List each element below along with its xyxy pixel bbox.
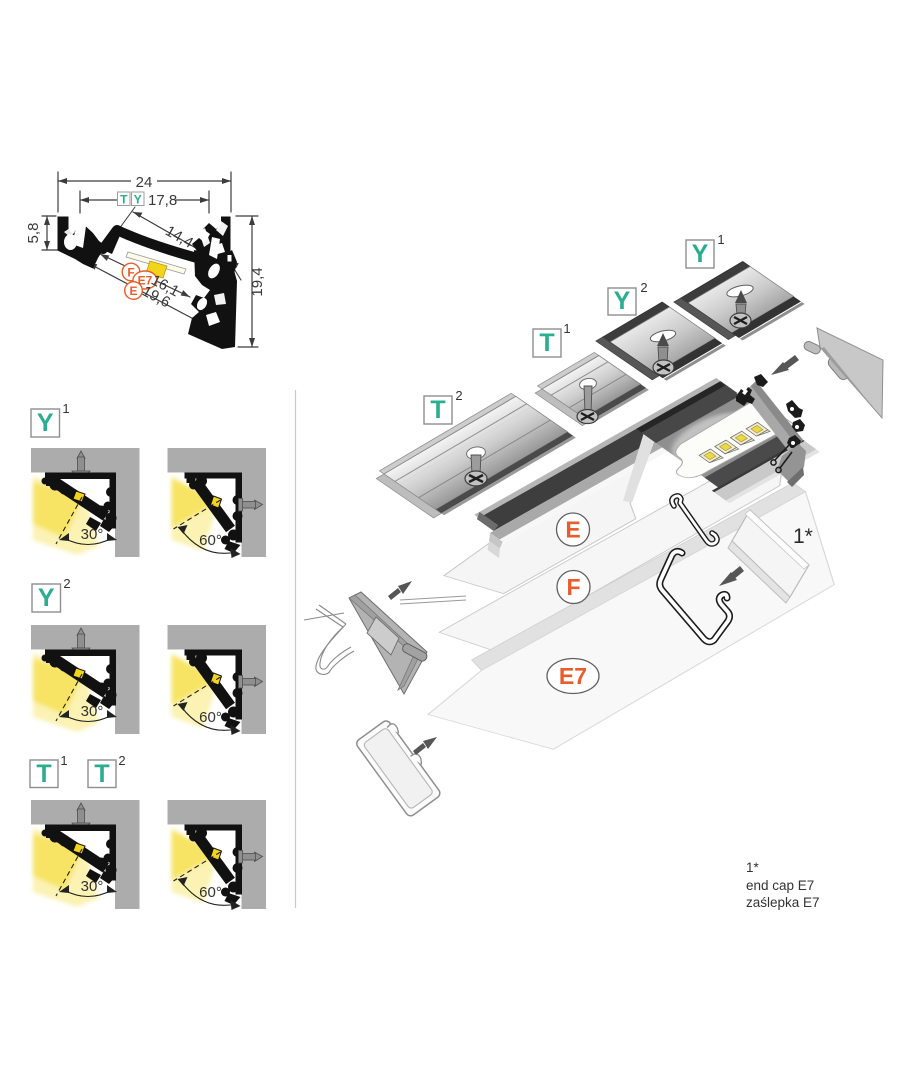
svg-text:T: T	[36, 760, 51, 788]
svg-text:E: E	[129, 284, 137, 298]
svg-text:Y: Y	[37, 409, 54, 437]
svg-text:1: 1	[62, 401, 69, 416]
svg-text:Y: Y	[692, 240, 709, 268]
svg-text:Y: Y	[38, 584, 55, 612]
svg-text:17,8: 17,8	[148, 192, 177, 209]
svg-text:1*: 1*	[793, 525, 813, 548]
svg-text:E: E	[565, 517, 580, 543]
svg-text:Y: Y	[134, 193, 142, 207]
svg-text:T: T	[94, 760, 109, 788]
svg-text:5,8: 5,8	[25, 223, 42, 244]
svg-text:T: T	[539, 329, 554, 357]
svg-text:end cap E7: end cap E7	[746, 878, 814, 893]
svg-text:1: 1	[60, 753, 67, 768]
svg-text:19,4: 19,4	[249, 267, 266, 296]
svg-text:T: T	[120, 193, 128, 207]
svg-text:2: 2	[63, 576, 70, 591]
svg-text:zaślepka E7: zaślepka E7	[746, 895, 820, 910]
svg-text:1: 1	[563, 321, 570, 336]
svg-text:E7: E7	[559, 663, 587, 689]
svg-text:Y: Y	[614, 287, 631, 315]
svg-text:2: 2	[640, 280, 647, 295]
svg-text:24: 24	[136, 174, 153, 191]
svg-text:1: 1	[717, 232, 724, 247]
svg-text:T: T	[430, 396, 445, 424]
svg-text:1*: 1*	[746, 860, 760, 875]
svg-text:2: 2	[455, 388, 462, 403]
svg-text:F: F	[566, 574, 580, 600]
svg-text:2: 2	[118, 753, 125, 768]
